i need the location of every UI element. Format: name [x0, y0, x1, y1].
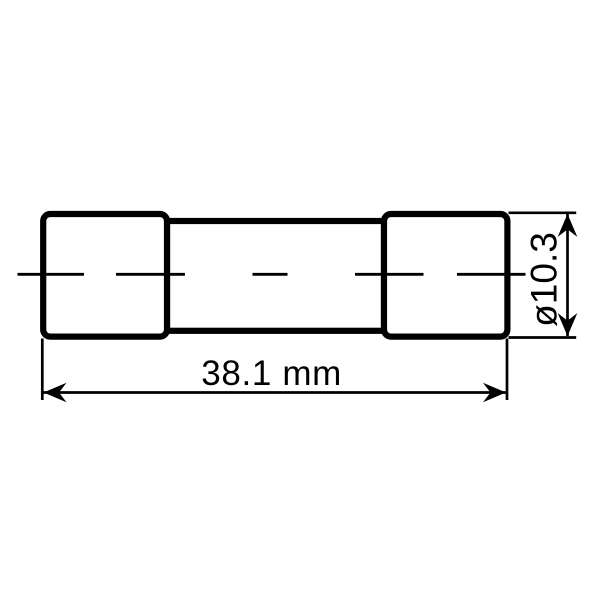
- svg-text:ø10.3: ø10.3: [523, 232, 564, 327]
- svg-text:38.1 mm: 38.1 mm: [201, 354, 342, 393]
